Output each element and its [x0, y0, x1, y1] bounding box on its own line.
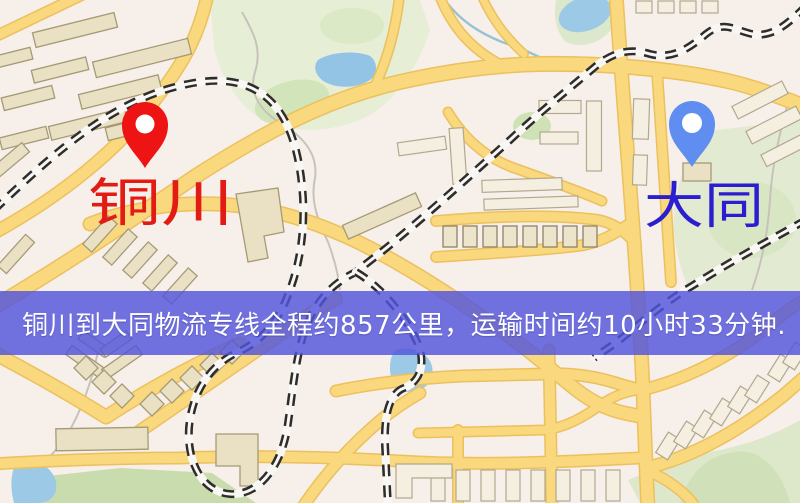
map-canvas[interactable]: 铜川 大同 — [0, 0, 800, 503]
origin-city-label: 铜川 — [88, 174, 234, 234]
destination-city-label: 大同 — [644, 177, 764, 235]
origin-pin-hole — [136, 115, 155, 134]
route-info-text: 铜川到大同物流专线全程约857公里，运输时间约10小时33分钟. — [22, 305, 786, 342]
map-screenshot: 铜川 大同 铜川到大同物流专线全程约857公里，运输时间约10小时33分钟. — [0, 0, 800, 503]
destination-pin-hole — [682, 113, 702, 133]
route-info-banner: 铜川到大同物流专线全程约857公里，运输时间约10小时33分钟. — [0, 291, 800, 355]
